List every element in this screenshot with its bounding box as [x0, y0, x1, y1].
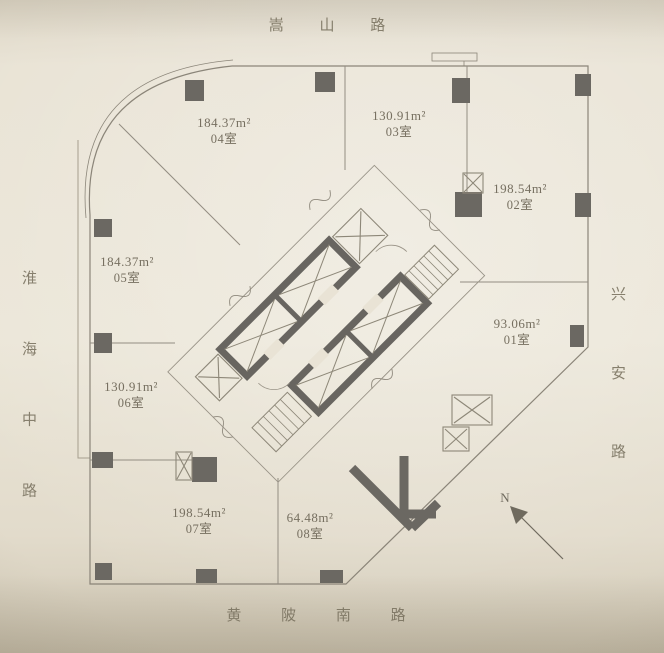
- lot-boundary-line: [78, 140, 90, 458]
- elevator-bank-a: [220, 240, 359, 379]
- room-label-01: 93.06m² 01室: [494, 315, 541, 349]
- street-label-right: 兴 安 路: [607, 286, 628, 489]
- room-area: 184.37m²: [197, 114, 251, 131]
- street-label-top: 嵩 山 路: [269, 14, 402, 35]
- room-area: 130.91m²: [372, 107, 426, 124]
- room-area: 184.37m²: [100, 253, 154, 270]
- north-label: N: [500, 490, 509, 506]
- room-name: 07室: [172, 521, 226, 538]
- room-label-03: 130.91m² 03室: [372, 107, 426, 141]
- room-name: 02室: [493, 197, 547, 214]
- room-label-06: 130.91m² 06室: [104, 378, 158, 412]
- room-label-05: 184.37m² 05室: [100, 253, 154, 287]
- floor-plan-photo: 嵩 山 路 淮 海 中 路 兴 安 路 黄 陂 南 路 93.06m² 01室 …: [0, 0, 664, 653]
- street-label-bottom: 黄 陂 南 路: [226, 604, 423, 625]
- room-area: 198.54m²: [172, 504, 226, 521]
- room-name: 04室: [197, 131, 251, 148]
- north-arrow-icon: [510, 506, 563, 559]
- room-area: 93.06m²: [494, 315, 541, 332]
- core-boundary: [168, 165, 485, 482]
- service-core: [194, 190, 460, 456]
- room-name: 08室: [287, 526, 334, 543]
- elevator-bank-b: [288, 273, 427, 412]
- door-arcs: [251, 236, 414, 399]
- room-label-07: 198.54m² 07室: [172, 504, 226, 538]
- room-area: 130.91m²: [104, 378, 158, 395]
- room-name: 05室: [100, 270, 154, 287]
- stairs: [252, 245, 458, 451]
- floor-plan-svg: [0, 0, 664, 653]
- room-area: 64.48m²: [287, 509, 334, 526]
- room-name: 06室: [104, 395, 158, 412]
- street-label-left: 淮 海 中 路: [18, 270, 39, 523]
- room-area: 198.54m²: [493, 180, 547, 197]
- room-label-08: 64.48m² 08室: [287, 509, 334, 543]
- room-name: 01室: [494, 332, 541, 349]
- room-label-02: 198.54m² 02室: [493, 180, 547, 214]
- room-label-04: 184.37m² 04室: [197, 114, 251, 148]
- room-name: 03室: [372, 124, 426, 141]
